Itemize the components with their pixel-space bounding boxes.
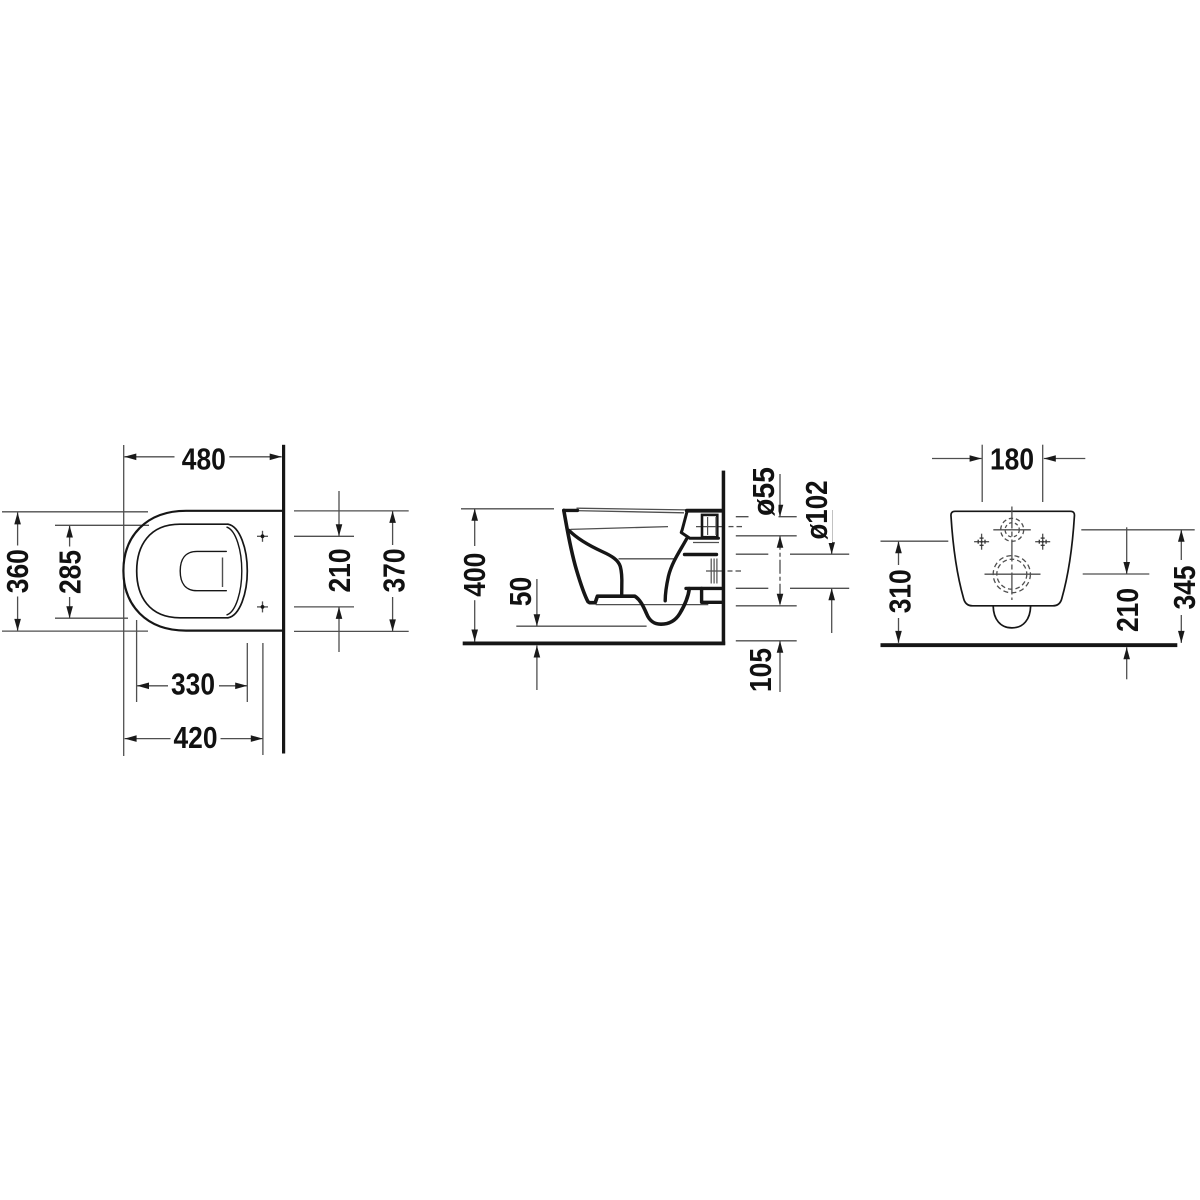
- svg-text:50: 50: [503, 577, 538, 607]
- svg-text:285: 285: [52, 550, 87, 594]
- svg-text:420: 420: [174, 720, 218, 755]
- svg-text:210: 210: [1110, 588, 1145, 632]
- svg-text:310: 310: [882, 569, 917, 613]
- svg-text:ø102: ø102: [799, 481, 834, 540]
- svg-text:400: 400: [457, 553, 492, 597]
- svg-text:180: 180: [990, 441, 1034, 476]
- svg-text:ø55: ø55: [746, 467, 781, 516]
- svg-text:105: 105: [743, 648, 778, 692]
- svg-text:370: 370: [376, 549, 411, 593]
- svg-text:330: 330: [171, 666, 215, 701]
- svg-text:480: 480: [182, 441, 226, 476]
- svg-text:210: 210: [322, 549, 357, 593]
- svg-text:360: 360: [0, 549, 35, 593]
- svg-text:345: 345: [1167, 566, 1200, 610]
